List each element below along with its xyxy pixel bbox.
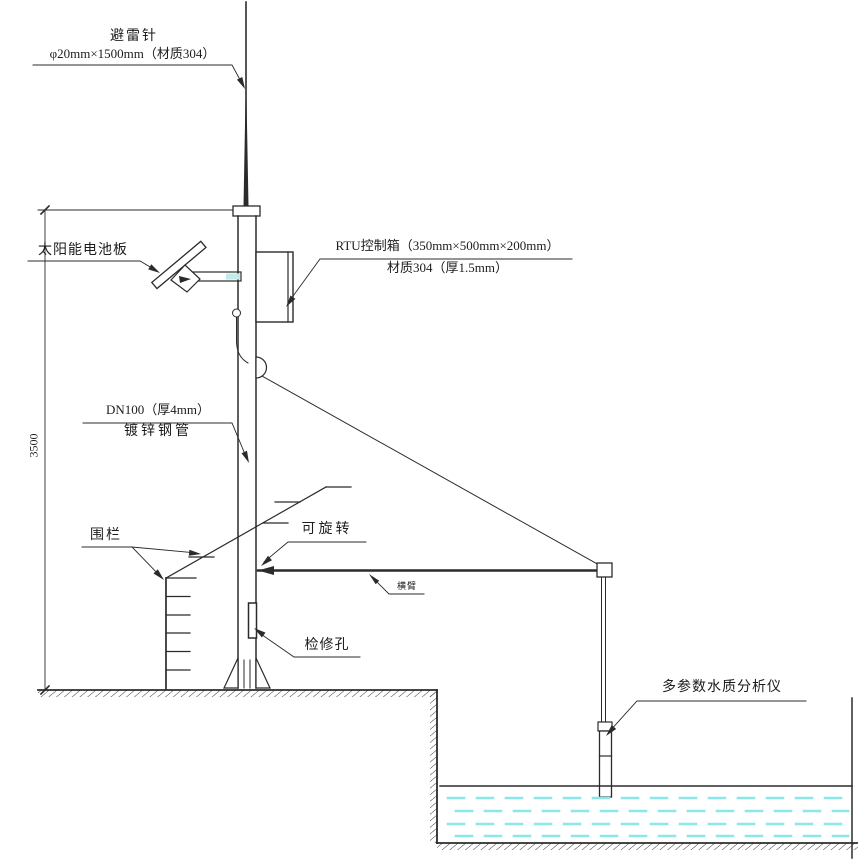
solar-panel-label: 太阳能电池板 <box>26 243 140 259</box>
analyzer-label: 多参数水质分析仪 <box>636 680 808 696</box>
solar-panel-leader <box>28 261 160 273</box>
fence-leader <box>82 547 201 580</box>
pipe-name-label: 镀锌钢管 <box>82 424 234 440</box>
rtu-control-box <box>256 252 293 322</box>
lightning-rod <box>244 2 249 206</box>
height-dimension <box>38 206 234 694</box>
boom-arm <box>258 563 612 577</box>
lightning-rod-spec-label: φ20mm×1500mm（材质304） <box>30 47 235 62</box>
pipe-spec-label: DN100（厚4mm） <box>82 403 234 418</box>
rtu-box-material-label: 材质304（厚1.5mm） <box>340 261 555 276</box>
inspection-hole-label: 检修孔 <box>292 638 362 654</box>
analyzer-leader <box>606 701 806 736</box>
fence-label: 围栏 <box>78 528 134 544</box>
inspection-hatch <box>249 603 257 638</box>
height-dimension-text: 3500 <box>27 425 42 467</box>
lightning-rod-label: 避雷针 <box>88 29 180 45</box>
rtu-box-spec-label: RTU控制箱（350mm×500mm×200mm） <box>320 239 575 254</box>
solar-panel <box>152 241 241 292</box>
lightning-rod-leader <box>33 65 245 89</box>
water-basin <box>440 786 852 836</box>
pulley <box>256 357 267 378</box>
rotatable-label: 可旋转 <box>286 522 368 538</box>
rotatable-leader <box>261 542 366 566</box>
cable-hook <box>233 309 249 363</box>
boom-pivot-arrow-icon <box>258 566 274 575</box>
analyzer-probe <box>598 577 612 797</box>
boom-label: 横臂 <box>388 581 426 591</box>
ground <box>38 690 858 858</box>
engineering-drawing: 避雷针 φ20mm×1500mm（材质304） 太阳能电池板 RTU控制箱（35… <box>0 0 858 862</box>
fence <box>166 487 351 689</box>
water-dashes <box>448 798 848 836</box>
leader-lines <box>28 65 806 736</box>
